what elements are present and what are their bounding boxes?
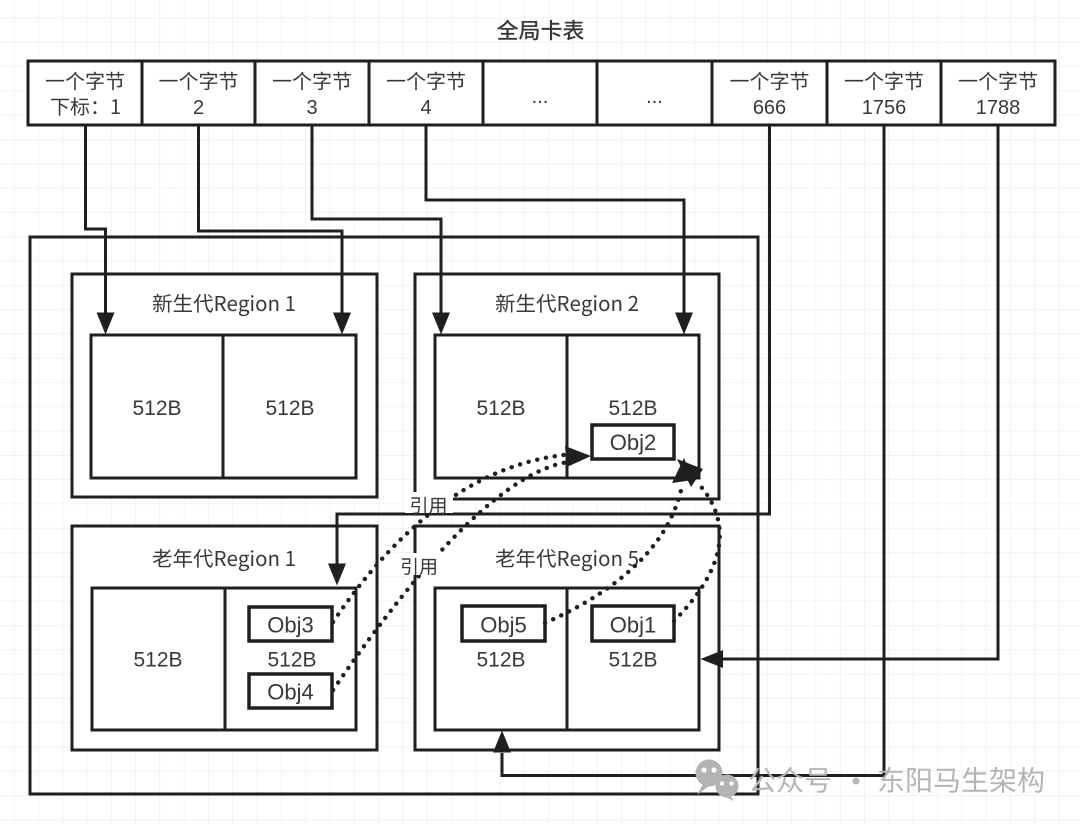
svg-text:Obj1: Obj1 bbox=[610, 613, 656, 638]
svg-text:Obj4: Obj4 bbox=[267, 680, 313, 705]
svg-text:512B: 512B bbox=[133, 649, 182, 672]
svg-text:512B: 512B bbox=[608, 397, 657, 420]
svg-text:2: 2 bbox=[193, 97, 204, 119]
svg-text:512B: 512B bbox=[265, 397, 314, 420]
svg-text:Obj3: Obj3 bbox=[267, 613, 313, 638]
svg-text:666: 666 bbox=[753, 97, 786, 119]
svg-text:...: ... bbox=[646, 86, 663, 108]
svg-text:1756: 1756 bbox=[862, 97, 907, 119]
svg-text:4: 4 bbox=[420, 97, 431, 119]
svg-text:3: 3 bbox=[306, 97, 317, 119]
svg-text:Obj5: Obj5 bbox=[480, 613, 526, 638]
svg-text:512B: 512B bbox=[476, 649, 525, 672]
svg-text:1788: 1788 bbox=[976, 97, 1021, 119]
svg-text:512B: 512B bbox=[608, 649, 657, 672]
svg-text:512B: 512B bbox=[476, 397, 525, 420]
svg-text:512B: 512B bbox=[267, 649, 316, 672]
svg-text:512B: 512B bbox=[132, 397, 181, 420]
svg-text:...: ... bbox=[532, 86, 549, 108]
svg-text:Obj2: Obj2 bbox=[610, 430, 656, 455]
